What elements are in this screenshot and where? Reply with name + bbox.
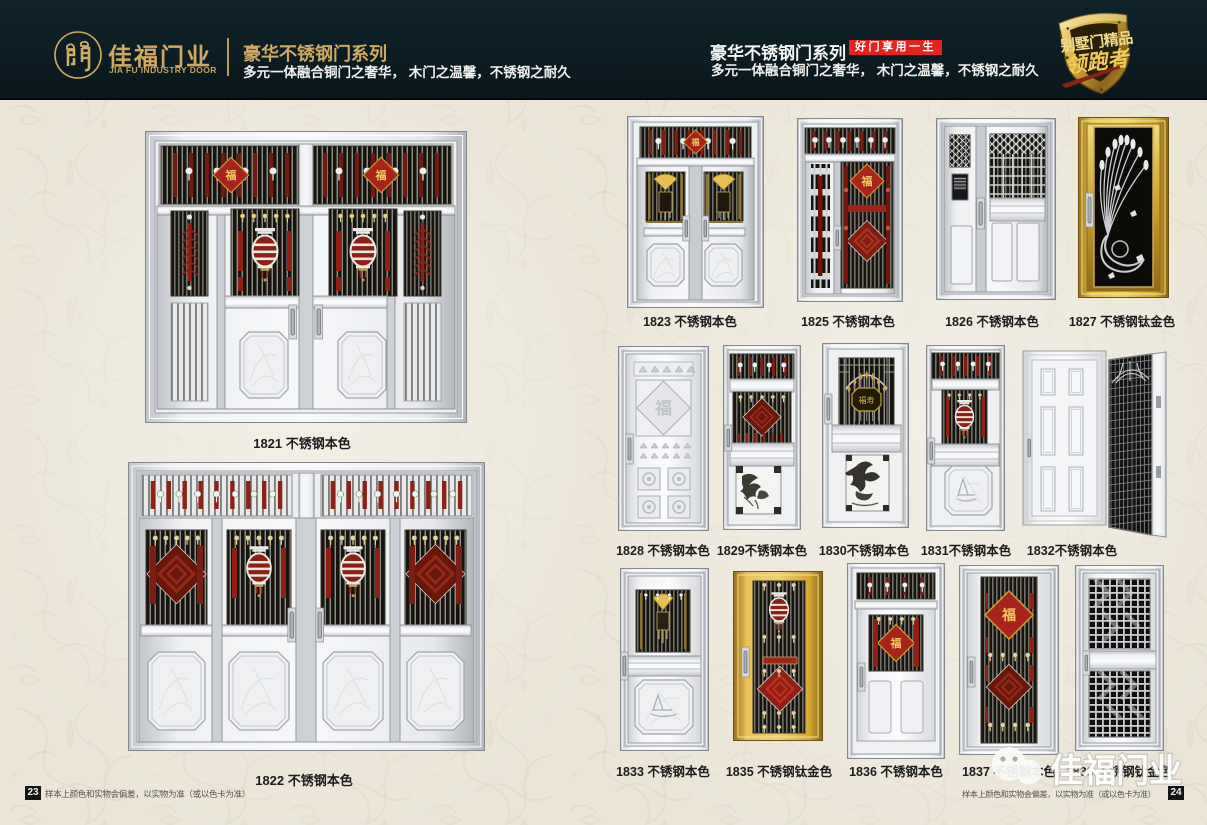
svg-text:佳福门业: 佳福门业 <box>1050 752 1182 789</box>
svg-text:福: 福 <box>691 137 700 147</box>
svg-text:福: 福 <box>861 174 873 188</box>
svg-text:福: 福 <box>890 636 902 650</box>
svg-text:福寿: 福寿 <box>859 395 875 405</box>
svg-text:福: 福 <box>225 168 237 182</box>
svg-text:福: 福 <box>654 398 672 418</box>
svg-text:福: 福 <box>375 168 387 182</box>
svg-text:福: 福 <box>1001 607 1016 623</box>
